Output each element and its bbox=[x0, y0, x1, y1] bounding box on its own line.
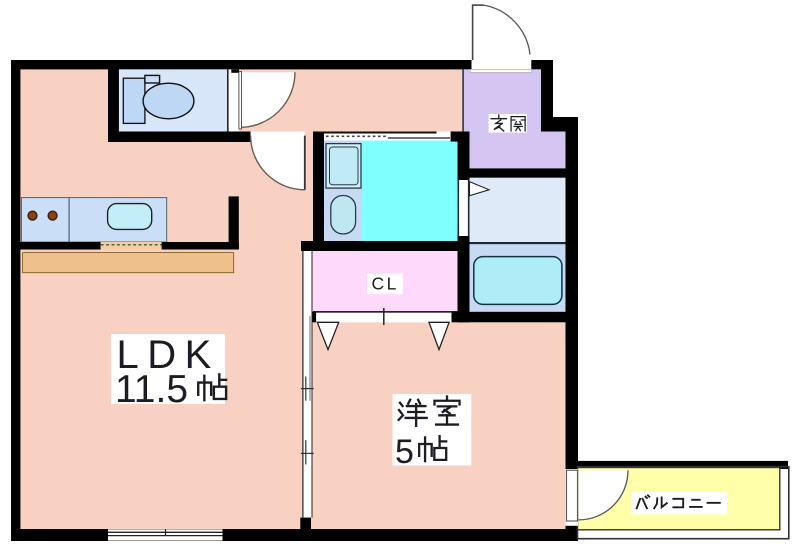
svg-text:5: 5 bbox=[395, 433, 414, 471]
svg-text:CL: CL bbox=[372, 274, 399, 294]
svg-text:11.5: 11.5 bbox=[115, 368, 188, 411]
